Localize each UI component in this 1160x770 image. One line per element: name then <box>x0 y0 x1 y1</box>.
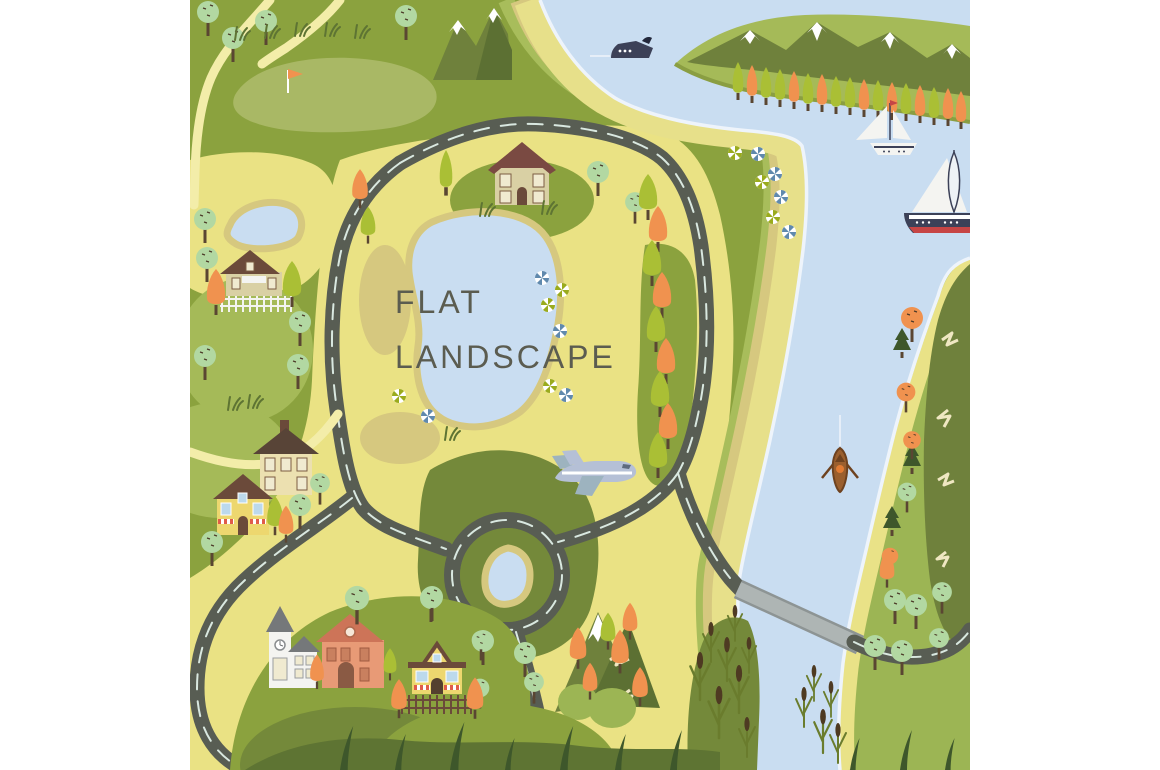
window <box>360 668 369 681</box>
awning-icon <box>444 685 460 690</box>
flower-icon <box>553 324 567 338</box>
window <box>221 503 231 515</box>
window <box>297 477 307 490</box>
window <box>295 669 303 678</box>
pond <box>227 202 302 248</box>
window <box>500 191 511 203</box>
flower-icon <box>541 298 555 312</box>
window <box>500 174 511 187</box>
rosette-window <box>345 627 355 637</box>
rower <box>836 465 844 473</box>
attic-window <box>246 262 254 271</box>
landscape-scene: FLAT LANDSCAPE <box>190 0 970 770</box>
window <box>533 174 544 187</box>
roundabout-lake <box>485 548 530 604</box>
window <box>446 671 458 682</box>
flower-icon <box>774 190 788 204</box>
balcony <box>242 276 266 283</box>
flower-icon <box>392 389 406 403</box>
flower-icon <box>768 167 782 181</box>
window <box>295 656 303 665</box>
window <box>416 671 428 682</box>
flat-landscape-illustration: FLAT LANDSCAPE <box>0 0 1160 770</box>
door <box>238 516 248 535</box>
awning-icon <box>218 519 234 524</box>
flower-icon <box>728 146 742 160</box>
gable-window <box>238 493 247 503</box>
arched-door <box>338 662 354 688</box>
awning-icon <box>414 685 430 690</box>
door <box>517 187 527 205</box>
awning-icon <box>250 519 266 524</box>
window <box>268 278 276 289</box>
window <box>232 278 240 289</box>
flower-icon <box>421 409 435 423</box>
flower-icon <box>755 175 769 189</box>
flower-icon <box>559 388 573 402</box>
flower-icon <box>766 210 780 224</box>
flower-icon <box>535 271 549 285</box>
bush-mound <box>588 688 636 728</box>
flower-icon <box>555 283 569 297</box>
window <box>265 458 275 471</box>
window <box>327 648 336 661</box>
window <box>360 648 369 661</box>
tower-window <box>273 658 287 680</box>
sailboat-hull <box>870 143 917 155</box>
title-line1: FLAT <box>395 284 483 320</box>
window <box>297 458 307 471</box>
window <box>253 503 263 515</box>
window <box>281 458 291 471</box>
hull-stripe <box>909 215 970 219</box>
title-line2: LANDSCAPE <box>395 339 616 375</box>
gable-window <box>433 654 441 662</box>
flower-icon <box>782 225 796 239</box>
door <box>431 678 443 694</box>
window <box>533 191 544 203</box>
hull-keel <box>909 227 970 233</box>
house-roof <box>408 662 466 668</box>
window <box>341 648 350 661</box>
flower-icon <box>543 379 557 393</box>
flower-icon <box>751 147 765 161</box>
window <box>265 477 275 490</box>
